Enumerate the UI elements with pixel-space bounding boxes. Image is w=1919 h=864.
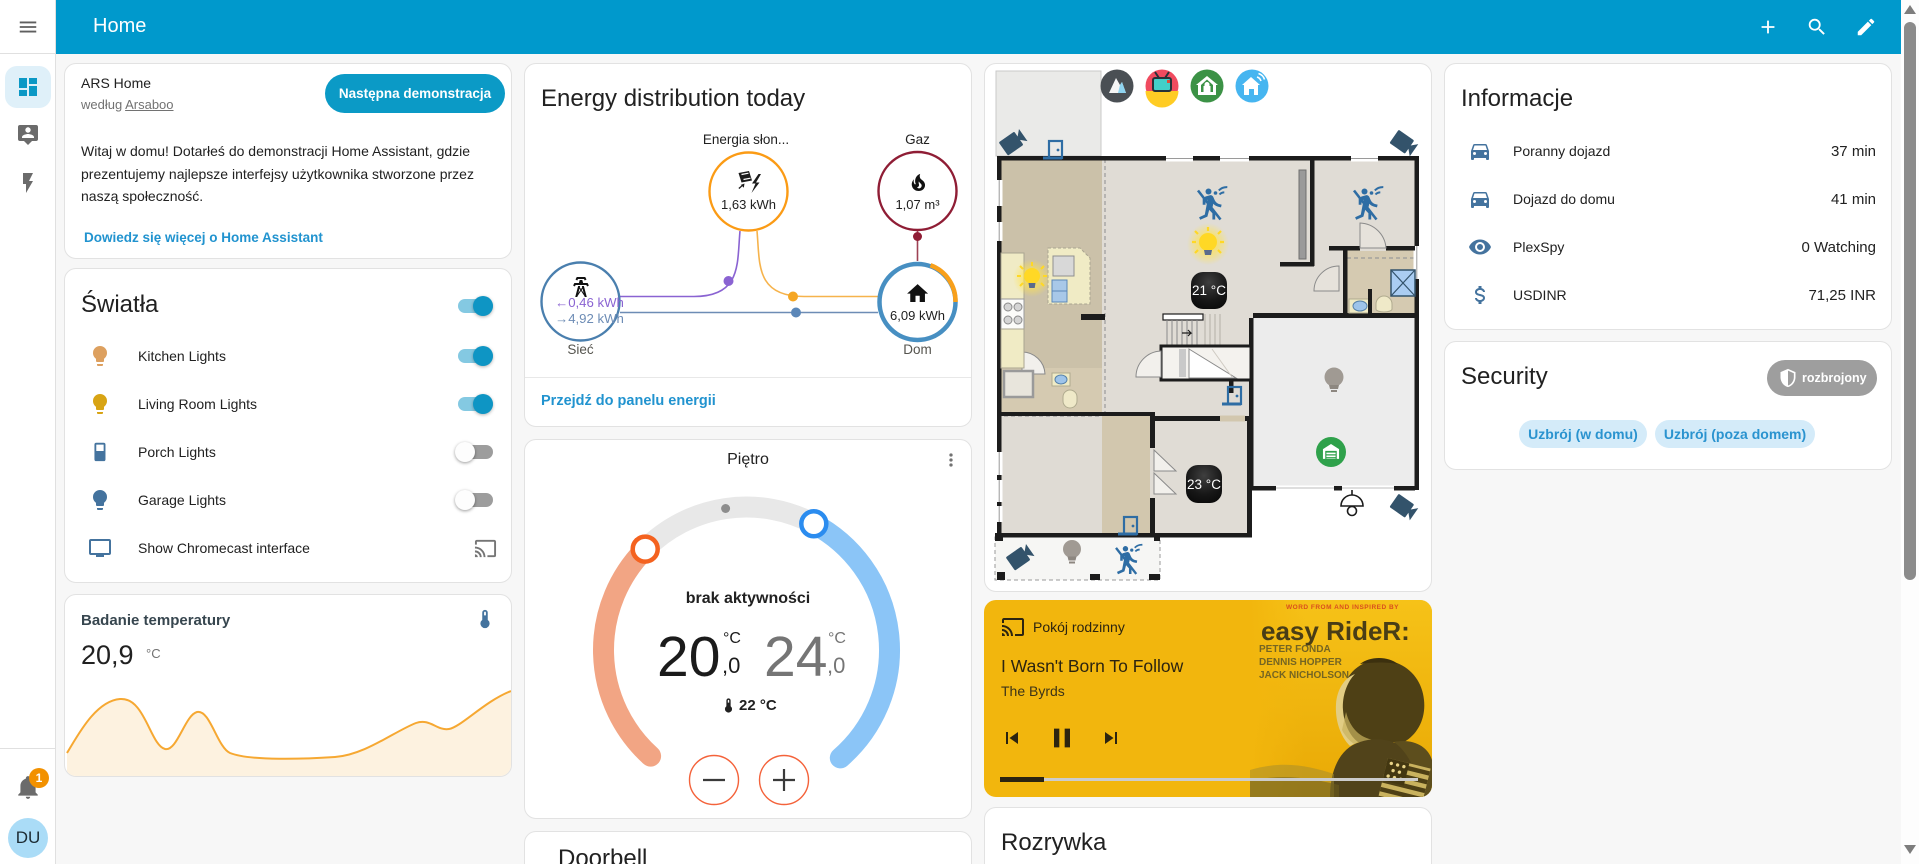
svg-text:23 °C: 23 °C [1187, 477, 1221, 492]
svg-text:6,09 kWh: 6,09 kWh [890, 308, 945, 323]
svg-text:Sieć: Sieć [567, 342, 594, 357]
svg-text:JACK NICHOLSON: JACK NICHOLSON [1259, 670, 1349, 681]
svg-text:→4,92 kWh: →4,92 kWh [555, 311, 624, 326]
svg-text:Dom: Dom [903, 342, 932, 357]
svg-text:PETER FONDA: PETER FONDA [1259, 644, 1331, 655]
svg-text:easy RideR:: easy RideR: [1261, 616, 1410, 646]
svg-text:WORD FROM AND INSPIRED BY: WORD FROM AND INSPIRED BY [1286, 604, 1399, 611]
svg-text:Gaz: Gaz [905, 132, 930, 147]
svg-text:21 °C: 21 °C [1192, 283, 1226, 298]
svg-text:1,07 m³: 1,07 m³ [895, 197, 940, 212]
svg-text:Energia słon...: Energia słon... [703, 132, 789, 147]
svg-text:DENNIS HOPPER: DENNIS HOPPER [1259, 657, 1343, 668]
svg-text:←0,46 kWh: ←0,46 kWh [555, 295, 624, 310]
svg-text:1,63 kWh: 1,63 kWh [721, 197, 776, 212]
